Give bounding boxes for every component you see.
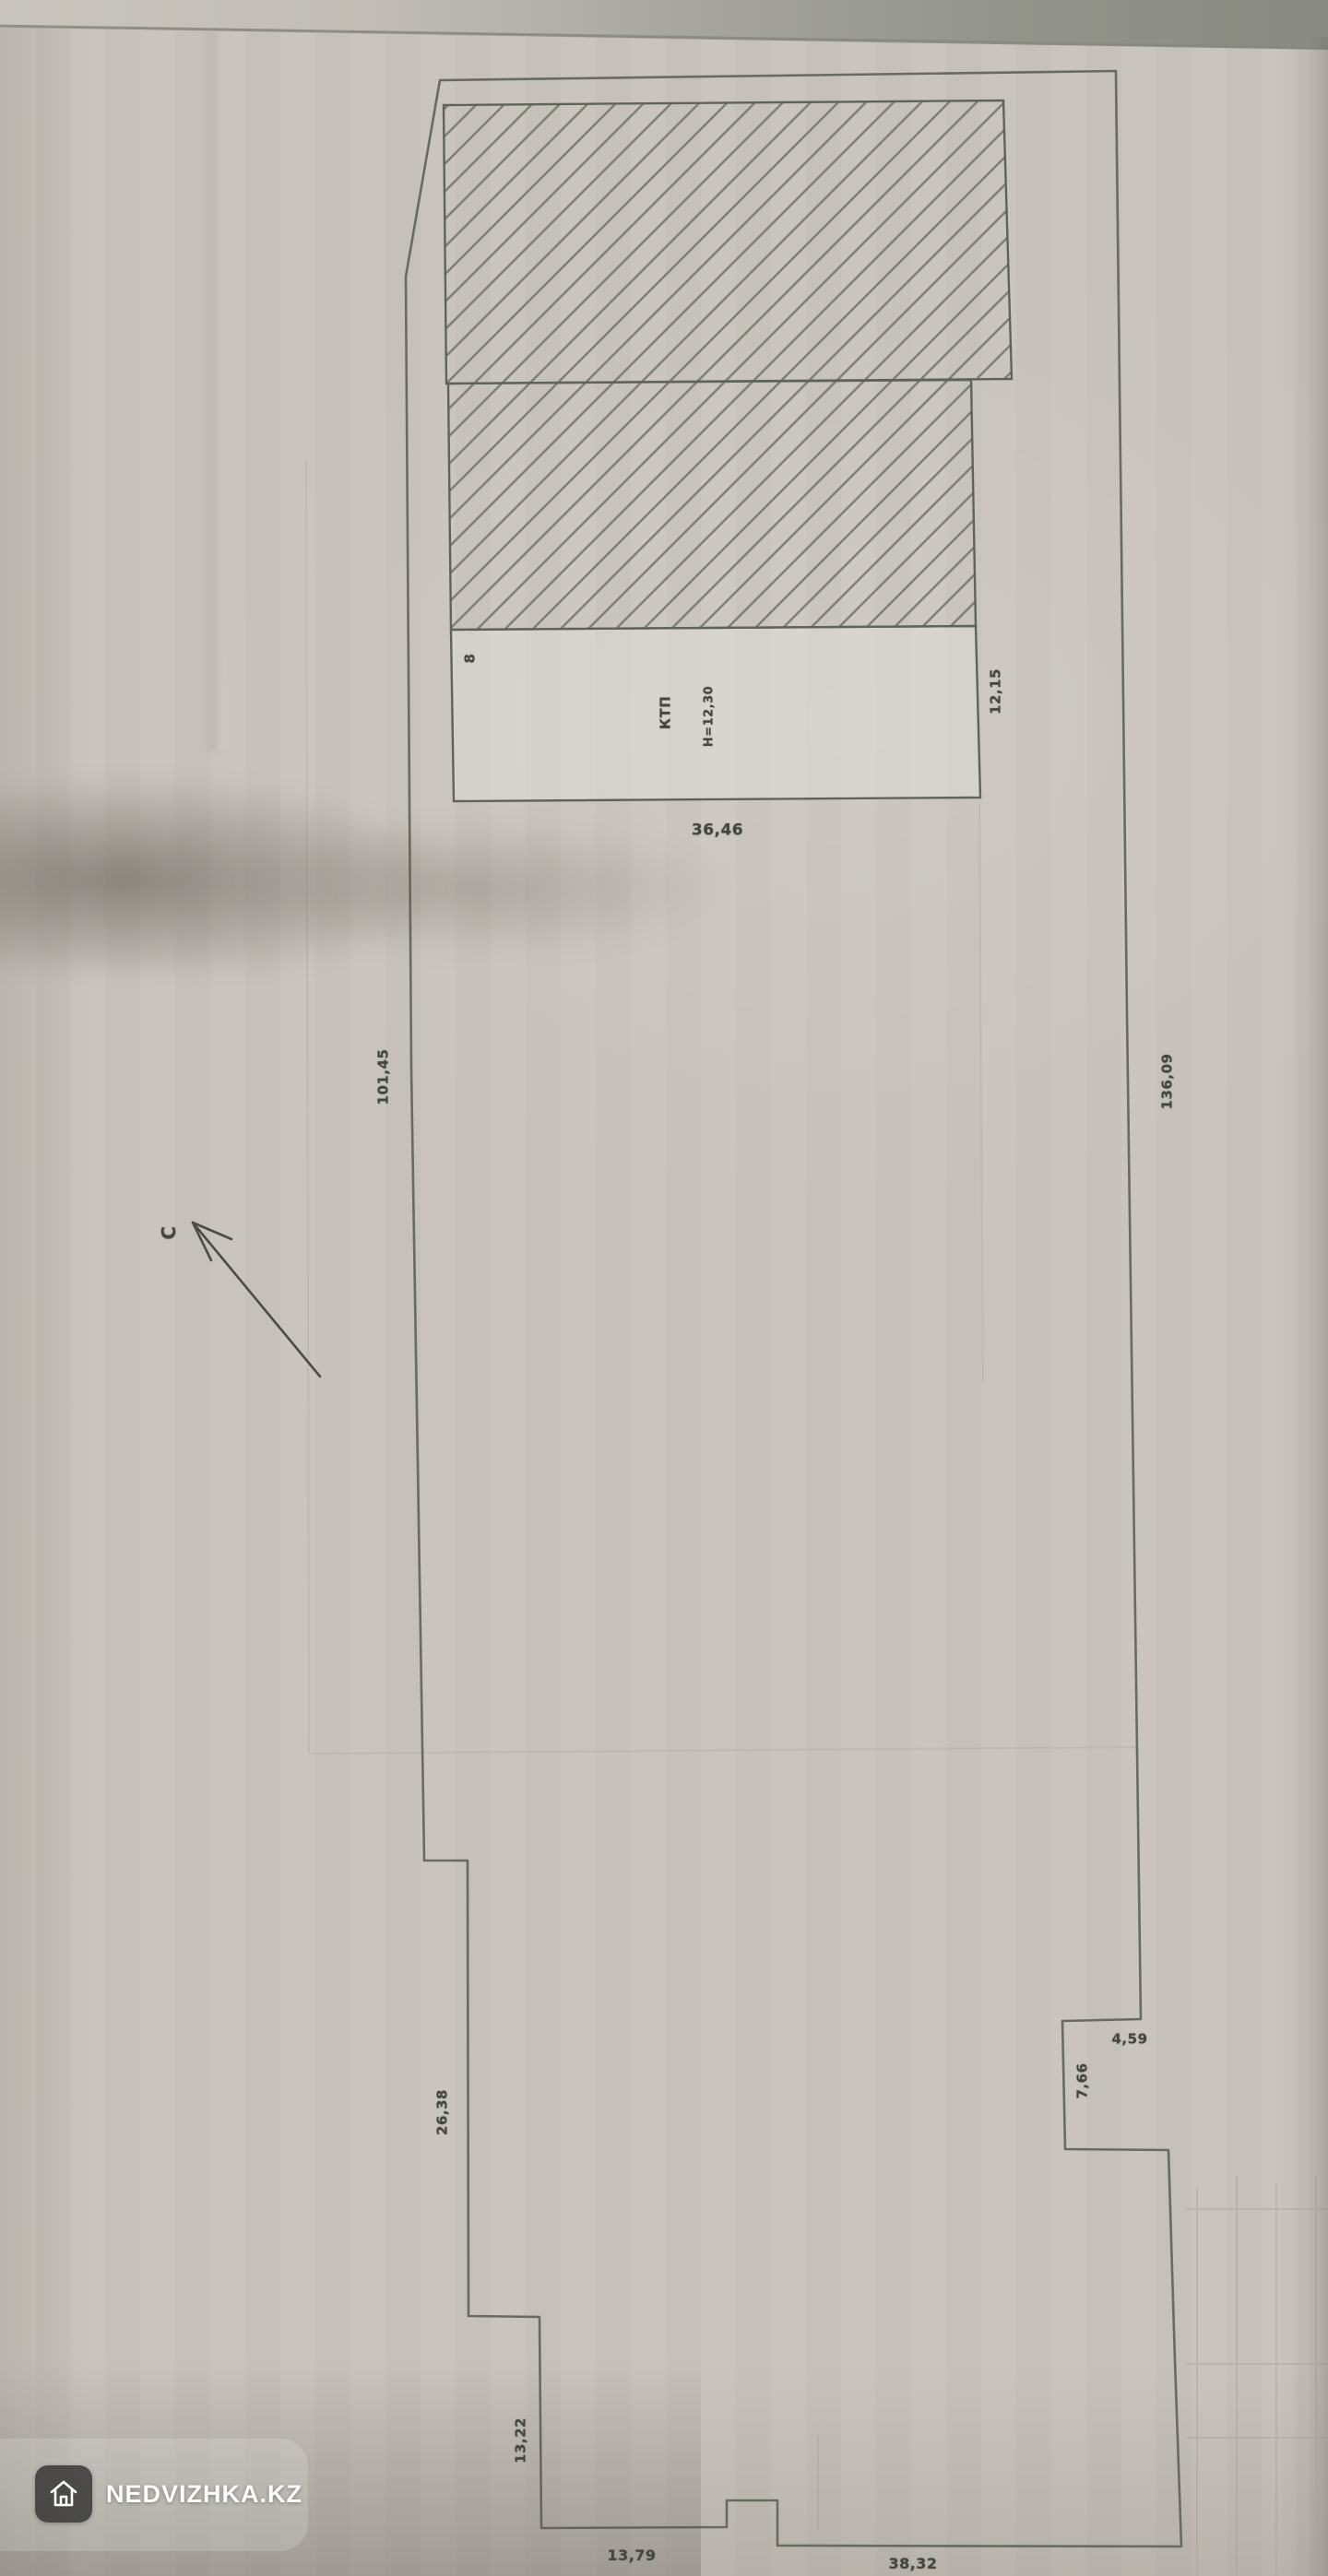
building-2-hatched xyxy=(448,380,976,630)
building-mark: 8 xyxy=(464,654,478,664)
north-letter: С xyxy=(160,1225,178,1239)
building-height-label: Н=12,30 xyxy=(704,686,716,747)
building-name-label: КТП xyxy=(659,696,673,730)
watermark: NEDVIZHKA.KZ xyxy=(35,2465,302,2523)
dim-38-32: 38,32 xyxy=(888,2557,937,2571)
bleedthrough-lines xyxy=(818,2176,1328,2576)
dim-136-09: 136,09 xyxy=(1161,1054,1175,1110)
dim-101-45: 101,45 xyxy=(377,1049,391,1105)
paper-edge-line xyxy=(0,26,1328,48)
scan-smudge-light xyxy=(231,819,729,957)
north-arrow xyxy=(193,1223,320,1377)
house-icon xyxy=(35,2465,92,2523)
dim-7-66: 7,66 xyxy=(1076,2062,1090,2098)
dim-12-15: 12,15 xyxy=(990,668,1003,715)
dim-26-38: 26,38 xyxy=(436,2089,450,2135)
scanned-site-plan-photo: 8КТПН=12,3012,1536,46101,45136,09С26,384… xyxy=(0,0,1328,2576)
right-edge-shadow xyxy=(1308,37,1328,2576)
site-plan-drawing xyxy=(0,0,1328,2576)
dim-4-59: 4,59 xyxy=(1111,2033,1147,2047)
building-1-hatched xyxy=(444,100,1012,384)
watermark-text: NEDVIZHKA.KZ xyxy=(106,2480,302,2509)
